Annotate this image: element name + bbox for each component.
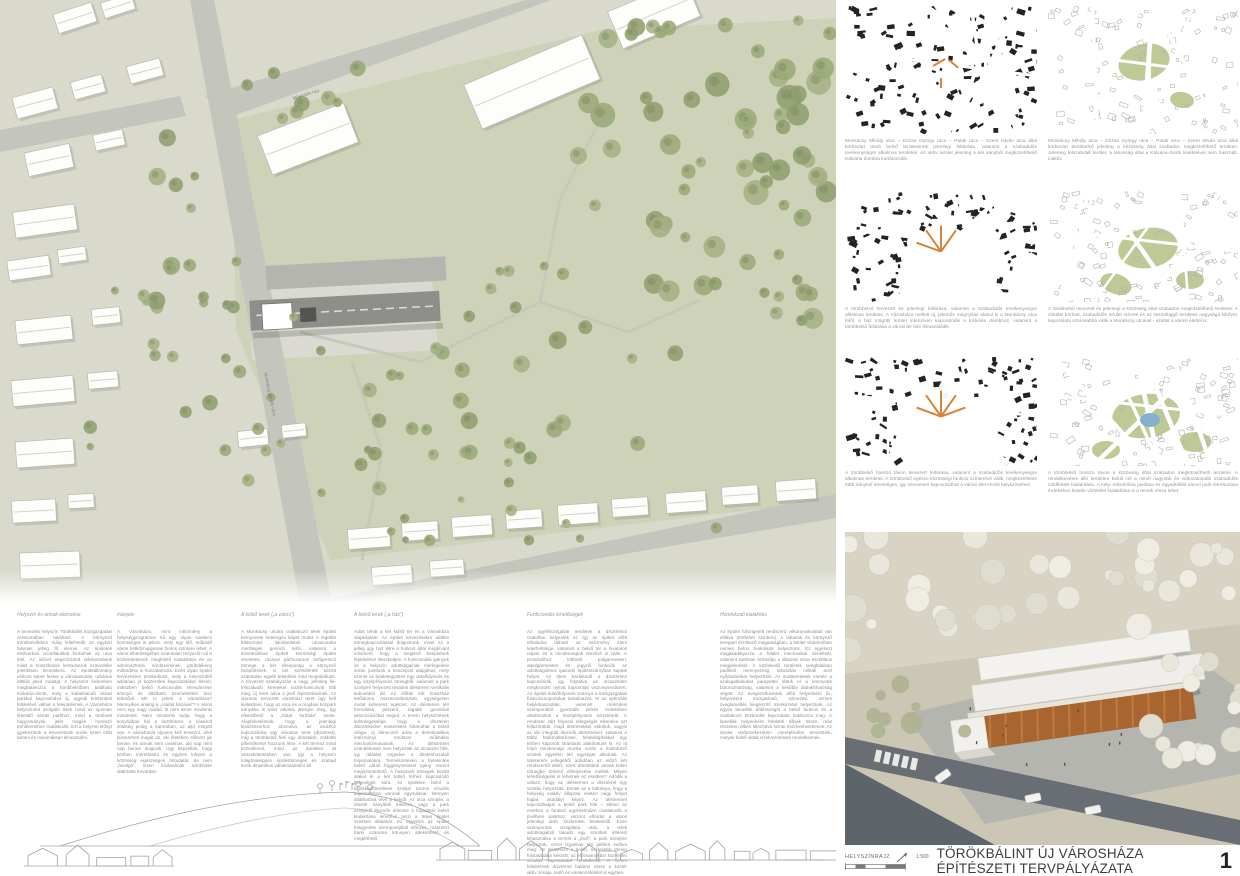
outline-map-1 (1048, 6, 1238, 134)
diagram-caption: A tömbbelső hosszú távon a közösség álta… (1048, 471, 1238, 495)
column-heading: Funkcionális lehetőségek (527, 612, 627, 618)
column-heading: A külső terek („a város”) (241, 612, 336, 618)
column-heading: Helyszín és annak elemzése (17, 612, 112, 618)
diagram-caption: A tömbbelső tervezett és jelenlegi feltá… (845, 307, 1037, 331)
diagram-caption: Munkácsy Mihály utca – Dózsa György utca… (845, 139, 1037, 163)
board-title: TÖRÖKBÁLINT ÚJ VÁROSHÁZA ÉPÍTÉSZETI TERV… (937, 846, 1213, 876)
plan-legend: HELYSZÍNRAJZ 1:500 (845, 851, 929, 871)
legend-label: HELYSZÍNRAJZ (845, 854, 890, 860)
column-heading: Irányelv (117, 612, 212, 618)
scale-bar (845, 863, 909, 871)
essay-column-facade: Homlokzati kialakítás Az épület hősziget… (720, 612, 832, 741)
diagram-planned-green: A tömbbelső tervezett és jelenlegi a köz… (1048, 190, 1238, 325)
aerial-render-drawing (845, 532, 1240, 845)
figure-ground-map-1 (845, 6, 1037, 134)
essay-column-site: Helyszín és annak elemzése A tervezési h… (17, 612, 112, 741)
north-arrow-icon (895, 851, 911, 863)
outline-map-3 (1048, 356, 1238, 466)
title-strip: HELYSZÍNRAJZ 1:500 TÖRÖKBÁLINT ÚJ VÁROSH… (845, 845, 1232, 876)
diagram-caption: Munkácsy Mihály utca – Dózsa György utca… (1048, 139, 1238, 163)
column-body: A tervezési helyszín Törökbálint közigaz… (17, 629, 112, 741)
diagram-longterm-access: A tömbbelső hosszú távon tervezett feltá… (845, 356, 1037, 489)
figure-ground-map-3 (845, 356, 1037, 466)
column-body: A Munkácsy utcára csatlakozó telek építe… (241, 629, 336, 769)
diagram-caption: A tömbbelső tervezett és jelenlegi a köz… (1048, 307, 1238, 325)
board-title-wrap: TÖRÖKBÁLINT ÚJ VÁROSHÁZA ÉPÍTÉSZETI TERV… (937, 846, 1232, 876)
diagram-existing-green: Munkácsy Mihály utca – Dózsa György utca… (1048, 6, 1238, 163)
section-drawing (20, 780, 836, 876)
diagram-planned-access: A tömbbelső tervezett és jelenlegi feltá… (845, 190, 1037, 331)
sheet-number: 1 (1220, 848, 1232, 874)
diagram-existing-access: Munkácsy Mihály utca – Dózsa György utca… (845, 6, 1037, 163)
essay-column-principle: Irányelv A Városháza, mint intézmény a h… (117, 612, 212, 774)
competition-board: Műemléki ház Munkácsy Mihály utca Munkác… (0, 0, 1240, 876)
scale-text: 1:500 (916, 854, 929, 860)
figure-ground-map-2 (845, 190, 1037, 302)
outline-map-2 (1048, 190, 1238, 302)
column-body: A Városháza, mint intézmény a helyiségpr… (117, 629, 212, 774)
column-heading: Homlokzati kialakítás (720, 612, 832, 618)
column-heading: A belső terek („a ház”) (354, 612, 449, 618)
essay-column-outdoor: A külső terek („a város”) A Munkácsy utc… (241, 612, 336, 769)
aerial-render (845, 532, 1240, 845)
diagram-caption: A tömbbelső hosszú távon tervezett feltá… (845, 471, 1037, 489)
site-plan-drawing (0, 0, 836, 604)
column-body: Az épület hőszigetelt rendszerű vékonyva… (720, 629, 832, 741)
site-plan: Műemléki ház Munkácsy Mihály utca (0, 0, 836, 604)
diagram-longterm-green: A tömbbelső hosszú távon a közösség álta… (1048, 356, 1238, 495)
site-section-sketch (20, 780, 836, 876)
